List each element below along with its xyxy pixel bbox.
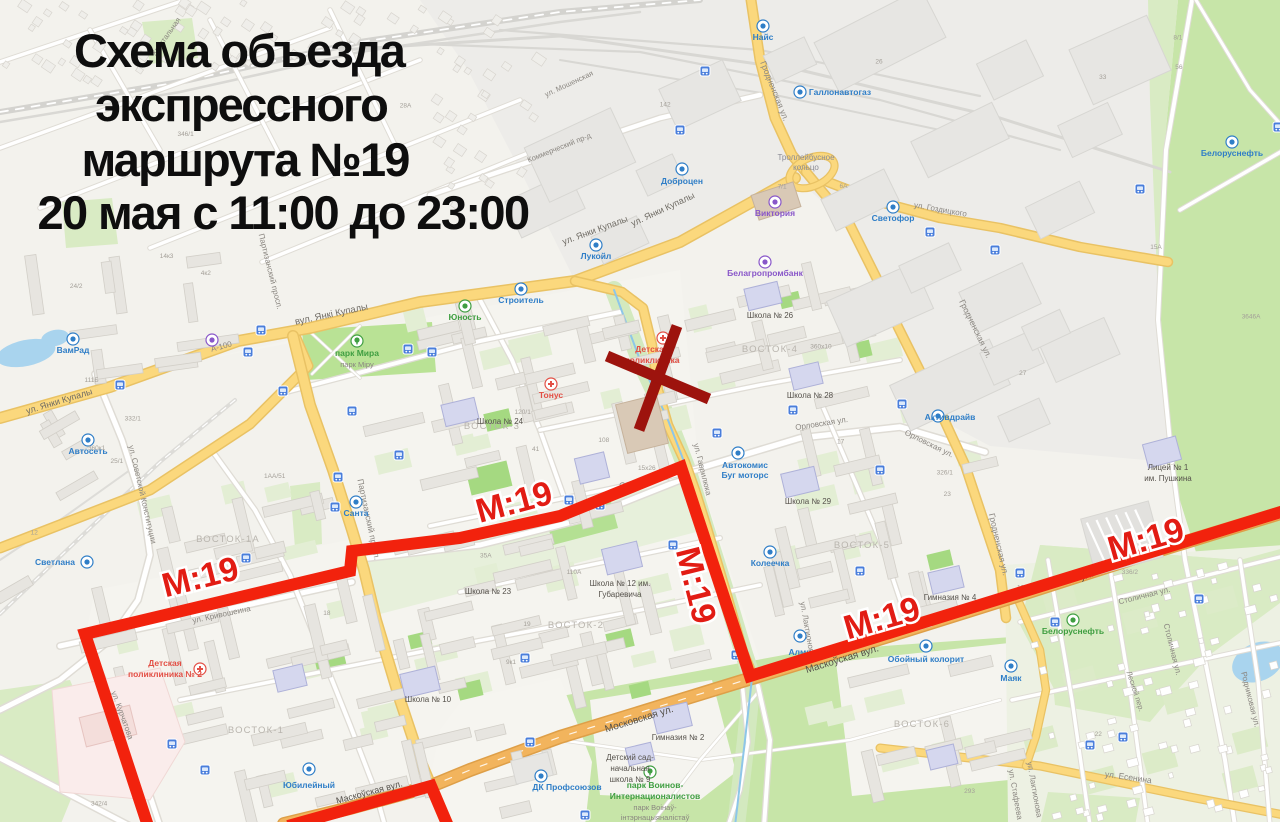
svg-text:Школа № 23: Школа № 23 [465, 587, 512, 596]
svg-text:ВОСТОК-1: ВОСТОК-1 [228, 725, 284, 736]
svg-text:Колеечка: Колеечка [751, 558, 790, 568]
svg-text:7/1: 7/1 [778, 183, 787, 190]
svg-text:6А: 6А [840, 183, 849, 190]
svg-text:ВОСТОК-1А: ВОСТОК-1А [196, 534, 260, 545]
svg-text:56: 56 [1175, 64, 1183, 71]
svg-text:26: 26 [875, 59, 883, 66]
svg-text:парк Воінаў-: парк Воінаў- [633, 803, 677, 812]
svg-text:Лукойл: Лукойл [581, 251, 612, 261]
svg-text:Схема объезда: Схема объезда [74, 24, 407, 77]
svg-text:Детский сад-: Детский сад- [606, 753, 654, 762]
svg-text:Белоруснефть: Белоруснефть [1201, 148, 1263, 158]
svg-text:Школа № 26: Школа № 26 [747, 311, 794, 320]
svg-text:4к2: 4к2 [201, 270, 211, 277]
svg-text:24/2: 24/2 [70, 283, 83, 290]
svg-text:111Б: 111Б [85, 377, 99, 384]
svg-text:им. Пушкина: им. Пушкина [1144, 474, 1192, 483]
svg-text:25/1: 25/1 [110, 458, 123, 465]
svg-text:336/2: 336/2 [1122, 569, 1139, 576]
svg-text:Белоруснефть: Белоруснефть [1042, 626, 1104, 636]
svg-text:Обойный колорит: Обойный колорит [888, 654, 964, 664]
svg-text:школа № 9: школа № 9 [610, 775, 651, 784]
svg-text:Школа № 28: Школа № 28 [787, 391, 834, 400]
svg-text:1АА/51: 1АА/51 [264, 473, 286, 480]
svg-text:3646А: 3646А [1242, 314, 1261, 321]
svg-text:Гимназия № 4: Гимназия № 4 [924, 593, 977, 602]
svg-text:экспрессного: экспрессного [95, 78, 387, 131]
svg-text:Гимназия № 2: Гимназия № 2 [652, 733, 705, 742]
svg-text:20 мая с 11:00 до 23:00: 20 мая с 11:00 до 23:00 [38, 186, 529, 239]
svg-text:ВамРад: ВамРад [57, 345, 90, 355]
svg-text:Светлана: Светлана [35, 557, 75, 567]
svg-text:18: 18 [323, 610, 331, 617]
svg-text:Буг моторс: Буг моторс [722, 470, 769, 480]
svg-text:ДК Профсоюзов: ДК Профсоюзов [532, 782, 601, 792]
svg-text:ВОСТОК-2: ВОСТОК-2 [548, 620, 604, 631]
svg-text:17: 17 [837, 438, 845, 445]
svg-text:19: 19 [523, 621, 531, 628]
svg-text:Найс: Найс [753, 32, 774, 42]
svg-text:Виктория: Виктория [755, 208, 795, 218]
svg-text:маршрута №19: маршрута №19 [81, 133, 409, 186]
svg-text:342/4: 342/4 [91, 800, 108, 807]
svg-text:360к1: 360к1 [88, 445, 106, 452]
svg-text:41: 41 [532, 446, 540, 453]
svg-text:14к3: 14к3 [160, 253, 174, 260]
svg-text:Лицей № 1: Лицей № 1 [1148, 463, 1189, 472]
svg-text:15А: 15А [1150, 244, 1162, 251]
svg-text:поликлиника № 2: поликлиника № 2 [128, 669, 202, 679]
svg-text:15х26: 15х26 [638, 465, 656, 472]
svg-text:ВОСТОК-4: ВОСТОК-4 [742, 344, 798, 355]
svg-text:108: 108 [598, 437, 609, 444]
svg-text:Доброцен: Доброцен [661, 176, 703, 186]
svg-text:Школа № 10: Школа № 10 [405, 695, 452, 704]
svg-text:Юбилейный: Юбилейный [283, 780, 335, 790]
svg-text:Школа № 24: Школа № 24 [477, 417, 524, 426]
svg-text:ВОСТОК-5: ВОСТОК-5 [834, 540, 890, 551]
svg-text:Тонус: Тонус [539, 390, 563, 400]
svg-text:120/1: 120/1 [515, 409, 532, 416]
svg-text:Санта: Санта [344, 508, 369, 518]
svg-text:кольцо: кольцо [793, 163, 819, 172]
svg-text:Детская: Детская [148, 658, 182, 668]
svg-text:Юность: Юность [448, 312, 481, 322]
svg-text:Активдрайв: Активдрайв [925, 412, 976, 422]
svg-text:Школа № 29: Школа № 29 [785, 497, 832, 506]
svg-text:інтэрнацыяналістаў: інтэрнацыяналістаў [621, 813, 690, 822]
svg-text:Белагропромбанк: Белагропромбанк [727, 268, 804, 278]
svg-text:парк Міру: парк Міру [340, 360, 374, 369]
svg-text:Галлонавтогаз: Галлонавтогаз [809, 87, 871, 97]
svg-text:142: 142 [660, 102, 671, 109]
svg-text:Автокомис: Автокомис [722, 460, 768, 470]
svg-text:33: 33 [1099, 74, 1107, 81]
svg-text:293: 293 [964, 788, 975, 795]
svg-text:332/1: 332/1 [125, 415, 142, 422]
svg-text:110А: 110А [567, 569, 582, 576]
svg-text:Губаревича: Губаревича [599, 590, 643, 599]
svg-text:360х10: 360х10 [810, 344, 832, 351]
svg-text:28А: 28А [400, 103, 412, 110]
svg-text:12: 12 [31, 529, 39, 536]
svg-text:парк Мира: парк Мира [335, 348, 379, 358]
svg-text:Светофор: Светофор [872, 213, 915, 223]
svg-text:9к1: 9к1 [506, 659, 516, 666]
svg-text:27: 27 [1019, 370, 1027, 377]
svg-text:Маяк: Маяк [1000, 673, 1022, 683]
svg-text:35А: 35А [480, 553, 492, 560]
svg-text:8/1: 8/1 [1173, 34, 1182, 41]
svg-text:Троллейбусное: Троллейбусное [777, 153, 835, 162]
svg-text:22: 22 [1095, 731, 1103, 738]
svg-text:Школа № 12 им.: Школа № 12 им. [590, 579, 651, 588]
svg-text:23: 23 [944, 491, 952, 498]
svg-text:ВОСТОК-6: ВОСТОК-6 [894, 719, 950, 730]
svg-text:начальная: начальная [610, 764, 649, 773]
svg-text:326/1: 326/1 [937, 469, 954, 476]
svg-text:Интернационалистов: Интернационалистов [610, 791, 701, 801]
svg-text:Строитель: Строитель [498, 295, 543, 305]
